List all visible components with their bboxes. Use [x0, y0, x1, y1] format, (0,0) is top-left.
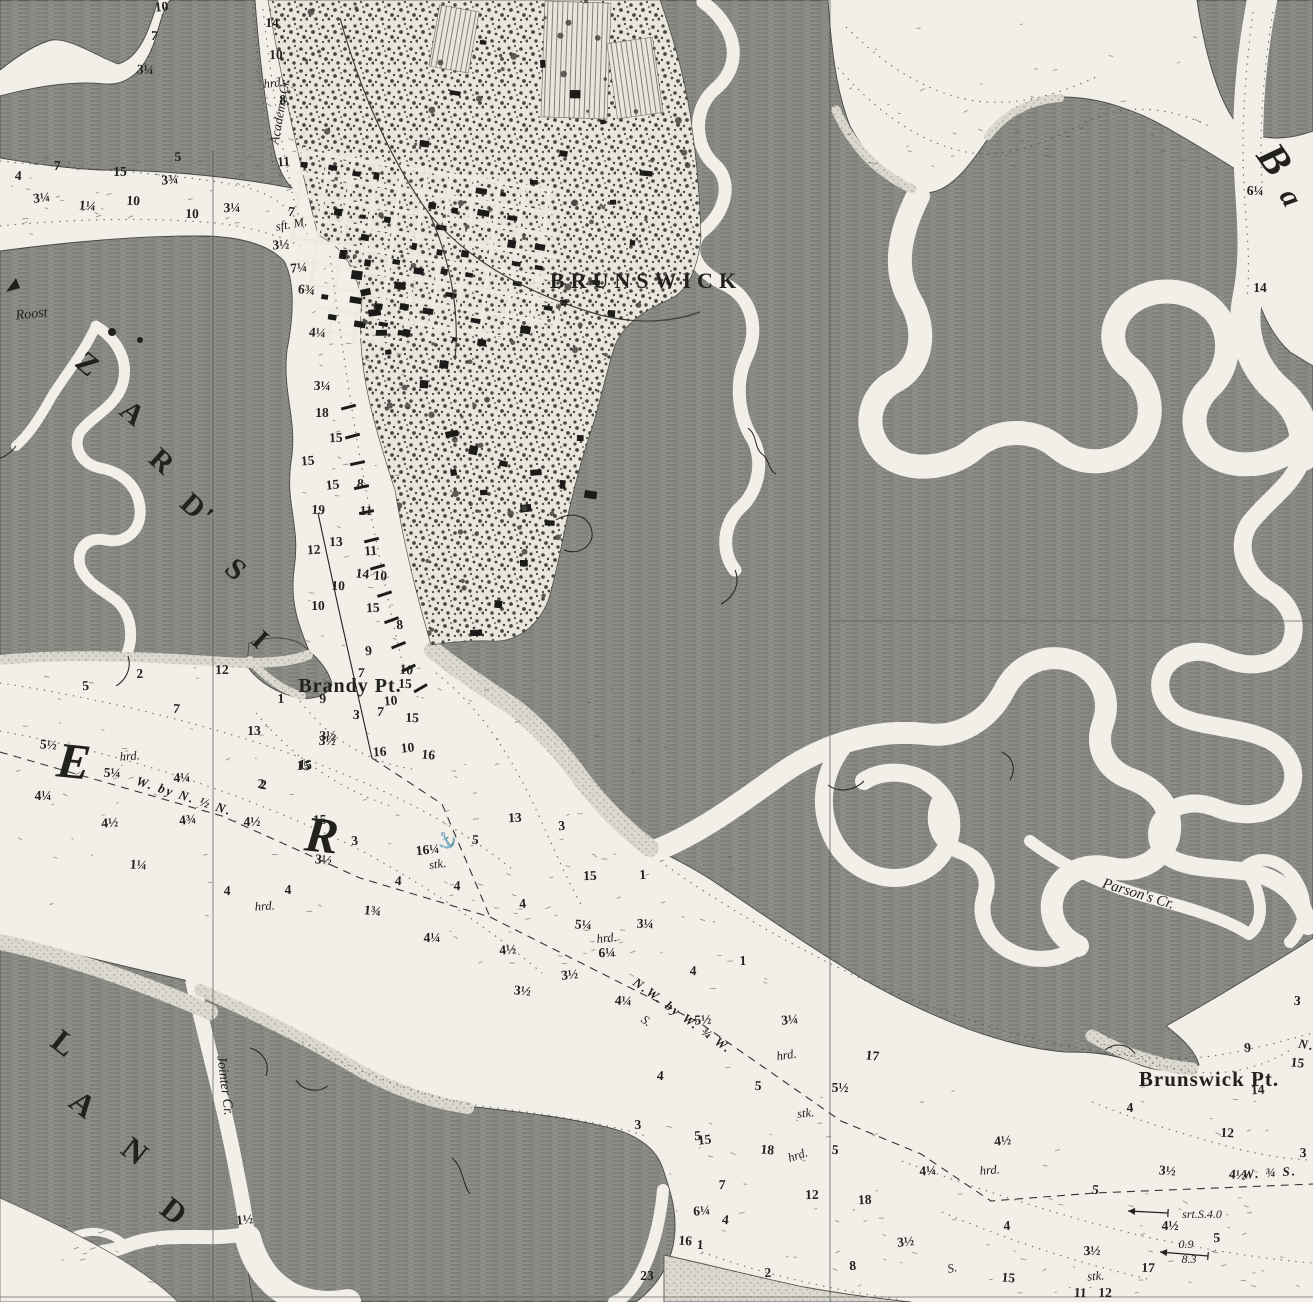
tree-clump	[634, 109, 639, 114]
marsh-west-island	[0, 236, 310, 664]
tree-clump	[305, 59, 308, 62]
sounding-depth: 23	[640, 1268, 654, 1283]
tree-clump	[452, 490, 459, 497]
sounding-depth: 11	[277, 153, 291, 169]
sounding-depth: 4¼	[614, 993, 632, 1009]
building	[334, 208, 343, 216]
tree-clump	[555, 534, 561, 540]
bottom-type-note: stk.	[428, 856, 447, 872]
sounding-depth: 4	[14, 168, 22, 183]
shoal-tick	[821, 1097, 823, 1098]
tree-clump	[353, 254, 357, 258]
sounding-depth: 3½	[1158, 1162, 1176, 1178]
tree-clump	[485, 307, 489, 311]
sounding-depth: 14	[355, 565, 370, 581]
sounding-depth: 16	[421, 746, 436, 762]
sounding-depth: 5	[755, 1078, 763, 1093]
building	[364, 259, 371, 267]
sounding-depth: 4½	[1162, 1218, 1179, 1233]
building	[477, 339, 487, 347]
shoal-tick	[1280, 1257, 1284, 1258]
sounding-depth: 5½	[832, 1080, 849, 1095]
sounding-depth: 13	[508, 810, 522, 825]
sounding-depth: 4½	[994, 1132, 1012, 1148]
tree-clump	[603, 77, 607, 81]
tree-clump	[363, 320, 368, 325]
sounding-depth: 4¼	[424, 930, 441, 945]
building	[545, 520, 555, 526]
bottom-type-note: hrd.	[254, 898, 275, 913]
building	[436, 249, 443, 256]
tree-clump	[565, 20, 571, 26]
building	[440, 268, 448, 275]
tree-clump	[522, 236, 526, 240]
tree-clump	[556, 304, 561, 309]
sounding-depth: 3½	[896, 1233, 914, 1250]
sounding-depth: 8	[396, 617, 404, 632]
shoal-tick	[590, 941, 594, 942]
tree-clump	[560, 71, 566, 77]
building	[428, 202, 436, 210]
sounding-depth: 15	[1290, 1054, 1305, 1070]
sounding-depth: 1¾	[363, 902, 381, 919]
sounding-depth: 19	[311, 502, 326, 518]
tree-clump	[461, 585, 466, 590]
sounding-depth: 5	[1213, 1230, 1221, 1245]
shoal-tick	[205, 915, 209, 916]
shoal-tick	[194, 668, 196, 669]
current-note: srt.S.4.0	[1182, 1207, 1222, 1221]
shoal-tick	[449, 931, 451, 932]
tree-clump	[324, 128, 330, 134]
sounding-depth: 15	[329, 430, 343, 445]
tree-clump	[489, 207, 493, 211]
sounding-depth: 3¼	[136, 62, 154, 78]
shoal-tick	[1049, 1199, 1053, 1200]
tree-clump	[525, 129, 528, 132]
building	[470, 630, 482, 637]
sounding-depth: 4½	[499, 941, 517, 957]
building	[560, 480, 566, 489]
building	[520, 325, 531, 334]
sounding-depth: 17	[1141, 1260, 1155, 1275]
shoal-tick	[309, 593, 314, 594]
sounding-depth: 7	[719, 1177, 726, 1192]
tree-clump	[428, 412, 434, 418]
building	[520, 560, 528, 566]
tree-clump	[653, 47, 656, 50]
building	[398, 330, 405, 336]
tree-clump	[596, 390, 599, 393]
shoal-tick	[1059, 1204, 1064, 1205]
shoal-tick	[393, 416, 398, 417]
building	[340, 250, 348, 255]
sounding-depth: 10	[373, 568, 388, 584]
sounding-depth: 1½	[235, 1211, 253, 1228]
sounding-depth: 6¼	[693, 1202, 711, 1218]
shoal-tick	[373, 335, 378, 336]
building	[630, 240, 636, 246]
tree-clump	[501, 67, 505, 71]
shoal-tick	[1069, 1287, 1071, 1288]
shoal-tick	[59, 723, 61, 724]
tree-clump	[469, 502, 473, 506]
sounding-depth: 15	[697, 1131, 712, 1147]
tree-clump	[422, 368, 425, 371]
shoal-tick	[258, 80, 260, 81]
sounding-depth: 15	[1001, 1269, 1016, 1285]
sounding-depth: 4	[1126, 1100, 1133, 1115]
shoal-tick	[33, 164, 37, 165]
bottom-type-note: hrd.	[776, 1047, 798, 1064]
building	[570, 90, 581, 98]
tree-clump	[499, 54, 503, 58]
sounding-depth: 18	[315, 405, 329, 420]
sounding-depth: 3½	[513, 982, 531, 998]
tree-clump	[465, 224, 470, 229]
tree-clump	[458, 309, 461, 312]
sounding-depth: 3½	[560, 966, 578, 983]
tree-clump	[458, 200, 464, 206]
building	[540, 60, 545, 68]
building	[419, 140, 429, 147]
tree-clump	[472, 403, 477, 408]
building	[351, 270, 363, 280]
shoal-tick	[613, 854, 615, 855]
sounding-depth: 10	[126, 193, 141, 209]
sounding-depth: 15	[296, 758, 311, 774]
tree-clump	[431, 342, 435, 346]
sounding-depth: 12	[307, 542, 322, 558]
tree-clump	[507, 510, 514, 517]
shoal-tick	[739, 1213, 745, 1214]
sounding-depth: 3	[634, 1117, 642, 1132]
sounding-depth: 1	[639, 867, 647, 882]
tree-clump	[572, 347, 579, 354]
building	[439, 360, 449, 369]
sounding-depth: 4¼	[308, 324, 326, 340]
sounding-depth: 4	[1003, 1218, 1011, 1233]
building	[610, 200, 616, 205]
sounding-depth: 3¼	[313, 378, 330, 394]
tree-clump	[547, 319, 550, 322]
sounding-depth: 15	[366, 600, 380, 615]
sounding-depth: 4¼	[919, 1163, 937, 1179]
sounding-depth: 15	[113, 164, 127, 179]
tree-clump	[458, 529, 463, 534]
sounding-depth: 18	[858, 1192, 873, 1208]
shoal-tick	[155, 174, 160, 175]
sounding-depth: 4	[394, 873, 402, 888]
tree-clump	[595, 35, 601, 41]
bottom-type-note: hrd.	[119, 748, 140, 763]
tree-clump	[521, 505, 527, 511]
shoal-tick	[266, 211, 270, 212]
sounding-depth: 3	[1300, 1145, 1307, 1160]
tree-clump	[536, 530, 539, 533]
building	[468, 445, 478, 455]
bottom-type-note: hrd.	[979, 1162, 1000, 1177]
building	[420, 380, 429, 388]
current-note: 0.9	[1179, 1237, 1194, 1251]
tree-clump	[430, 628, 434, 632]
tree-clump	[543, 16, 546, 19]
building	[373, 172, 380, 180]
sounding-depth: 3	[558, 818, 566, 833]
building	[450, 469, 457, 476]
tree-clump	[650, 158, 654, 162]
tree-clump	[334, 177, 338, 181]
large-letter: E	[53, 731, 95, 790]
sounding-depth: 4	[690, 963, 697, 978]
sounding-depth: 1	[739, 953, 746, 968]
sounding-depth: 1¼	[78, 197, 96, 213]
sounding-depth: 4½	[101, 814, 119, 830]
tree-clump	[527, 420, 531, 424]
shoal-tick	[818, 1123, 823, 1124]
place-label: Brunswick Pt.	[1139, 1067, 1279, 1091]
sounding-depth: 2	[136, 666, 144, 681]
sounding-depth: 6¼	[1246, 183, 1263, 199]
shoal-tick	[1020, 24, 1023, 25]
tree-clump	[601, 205, 605, 209]
tree-clump	[578, 322, 583, 327]
tree-clump	[304, 140, 308, 144]
building	[608, 310, 616, 317]
sounding-depth: 15	[583, 868, 597, 883]
tree-clump	[604, 353, 608, 357]
tree-clump	[354, 6, 358, 10]
sounding-depth: 5¼	[574, 916, 592, 932]
sounding-depth: 4¾	[178, 811, 196, 828]
tree-clump	[685, 162, 691, 168]
tree-clump	[636, 302, 641, 307]
building	[383, 216, 391, 223]
sounding-depth: 17	[865, 1047, 880, 1063]
tree-clump	[484, 397, 490, 403]
sounding-depth: 7¼	[290, 259, 308, 275]
sounding-depth: 10	[311, 598, 325, 613]
building	[411, 243, 417, 251]
building	[500, 192, 506, 197]
sounding-depth: 10	[154, 0, 169, 15]
sounding-depth: 2	[764, 1265, 772, 1280]
sounding-depth: 4¼	[35, 788, 52, 803]
place-label: BRUNSWICK	[550, 268, 742, 293]
sounding-depth: 3½	[319, 733, 336, 748]
tree-clump	[387, 402, 393, 408]
current-arrow-tail-tick	[1208, 1252, 1209, 1260]
sounding-depth: 11	[1073, 1285, 1087, 1301]
building	[507, 239, 516, 248]
tree-clump	[307, 9, 314, 16]
sounding-depth: 5¼	[103, 765, 120, 781]
tree-clump	[681, 149, 687, 155]
tree-clump	[442, 214, 446, 218]
current-note-secondary: 8.3	[1182, 1252, 1197, 1266]
sounding-depth: 14	[265, 15, 279, 30]
sounding-depth: 15	[405, 710, 419, 725]
sounding-depth: 5	[174, 149, 182, 164]
bottom-type-note: hrd.	[596, 930, 617, 946]
tree-clump	[400, 254, 404, 258]
building	[360, 214, 366, 219]
building	[360, 234, 369, 241]
sounding-depth: 4	[656, 1068, 664, 1083]
shoal-tick	[329, 344, 333, 345]
tree-clump	[644, 218, 647, 221]
shoal-tick	[1261, 1271, 1264, 1272]
tree-clump	[517, 525, 522, 530]
sounding-depth: 10	[269, 47, 283, 62]
sounding-depth: 11	[360, 503, 373, 518]
tree-clump	[478, 510, 481, 513]
tree-clump	[378, 212, 384, 218]
large-letter: R	[301, 805, 343, 864]
historic-nautical-chart-brunswick: 1073¼14108117471553¾3¼1¼10103¼3½7¼6¾4¼3¼…	[0, 0, 1313, 1302]
tree-clump	[414, 143, 417, 146]
sounding-depth: 13	[329, 534, 343, 549]
sounding-depth: 4½	[243, 814, 260, 829]
tree-clump	[402, 385, 408, 391]
sounding-depth: 3¼	[32, 189, 50, 206]
building	[385, 350, 392, 355]
sounding-depth: 16	[372, 744, 387, 760]
sounding-depth: 7	[54, 158, 62, 173]
tree-clump	[589, 220, 594, 225]
sounding-depth: 5½	[39, 736, 57, 752]
sounding-depth: 3¼	[781, 1011, 799, 1027]
tree-clump	[478, 443, 483, 448]
sounding-depth: 12	[215, 662, 229, 677]
building	[530, 180, 538, 185]
field-hatched-large	[541, 1, 611, 119]
building	[577, 435, 584, 441]
sounding-depth: 4¼	[173, 770, 190, 786]
sounding-depth: 11	[364, 542, 378, 558]
tree-clump	[421, 178, 424, 181]
shoal-tick	[952, 1219, 956, 1220]
building	[451, 207, 458, 214]
sounding-depth: 3	[352, 707, 360, 722]
tree-clump	[510, 53, 517, 60]
shoal-tick	[1252, 1273, 1255, 1274]
sounding-depth: 16	[678, 1233, 693, 1249]
tree-clump	[549, 511, 554, 516]
tree-clump	[317, 50, 321, 54]
tree-clump	[405, 403, 411, 409]
tree-clump	[460, 415, 463, 418]
place-label: Brandy Pt.	[298, 675, 401, 697]
sounding-depth: 3½	[272, 237, 290, 253]
sounding-depth: 1¼	[129, 856, 147, 872]
tree-clump	[460, 579, 464, 583]
bearing-label: N.	[1296, 1036, 1313, 1054]
building	[494, 600, 503, 608]
sounding-depth: 1	[277, 691, 284, 706]
sounding-depth: 6¼	[598, 945, 615, 961]
sounding-depth: 13	[247, 723, 261, 738]
sounding-depth: 4	[454, 878, 461, 893]
sounding-depth: 10	[185, 206, 199, 221]
building	[376, 330, 387, 336]
building	[480, 490, 488, 496]
sounding-depth: 8	[849, 1258, 857, 1273]
tree-clump	[474, 532, 479, 537]
tree-clump	[476, 96, 482, 102]
tree-clump	[426, 559, 430, 563]
sounding-depth: 12	[1220, 1125, 1235, 1141]
tree-clump	[586, 110, 589, 113]
sounding-depth: 5	[831, 1142, 839, 1157]
sounding-depth: 3¾	[161, 171, 179, 187]
chart-canvas: 1073¼14108117471553¾3¼1¼10103¼3½7¼6¾4¼3¼…	[0, 0, 1313, 1302]
sounding-depth: 3½	[1083, 1243, 1100, 1258]
sounding-depth: 1	[697, 1237, 705, 1252]
sounding-depth: 12	[805, 1187, 819, 1202]
sounding-depth: 15	[300, 453, 315, 469]
tree-clump	[452, 437, 458, 443]
building	[300, 162, 308, 169]
sounding-depth: 3¼	[223, 200, 240, 215]
tree-clump	[411, 263, 417, 269]
sounding-depth: 12	[1098, 1285, 1112, 1300]
tree-clump	[469, 479, 473, 483]
building	[600, 119, 606, 124]
tree-clump	[541, 593, 546, 598]
sounding-depth: 15	[325, 476, 340, 492]
bottom-type-note: stk.	[796, 1105, 814, 1121]
tree-clump	[638, 240, 641, 243]
tree-clump	[510, 340, 515, 345]
sounding-depth: 3¼	[636, 916, 653, 932]
tree-clump	[438, 60, 444, 66]
tree-clump	[557, 33, 563, 39]
tree-clump	[675, 117, 682, 124]
building	[530, 469, 542, 476]
sounding-depth: 18	[760, 1141, 775, 1157]
tree-clump	[522, 549, 528, 555]
sounding-depth: 6¾	[297, 281, 315, 298]
tree-clump	[468, 359, 473, 364]
sounding-depth: 10	[400, 739, 415, 755]
shoal-tick	[1055, 1292, 1057, 1293]
tree-clump	[410, 283, 414, 287]
tree-clump	[472, 55, 476, 59]
sounding-depth: 10	[331, 578, 345, 593]
tree-clump	[428, 107, 435, 114]
sounding-depth: 4	[285, 882, 292, 897]
sounding-depth: 14	[1253, 280, 1267, 295]
building	[480, 40, 487, 45]
sounding-depth: 4	[224, 883, 232, 898]
tree-clump	[571, 199, 578, 206]
sounding-depth: 3	[1293, 993, 1301, 1008]
bottom-type-note: stk.	[1087, 1268, 1105, 1283]
